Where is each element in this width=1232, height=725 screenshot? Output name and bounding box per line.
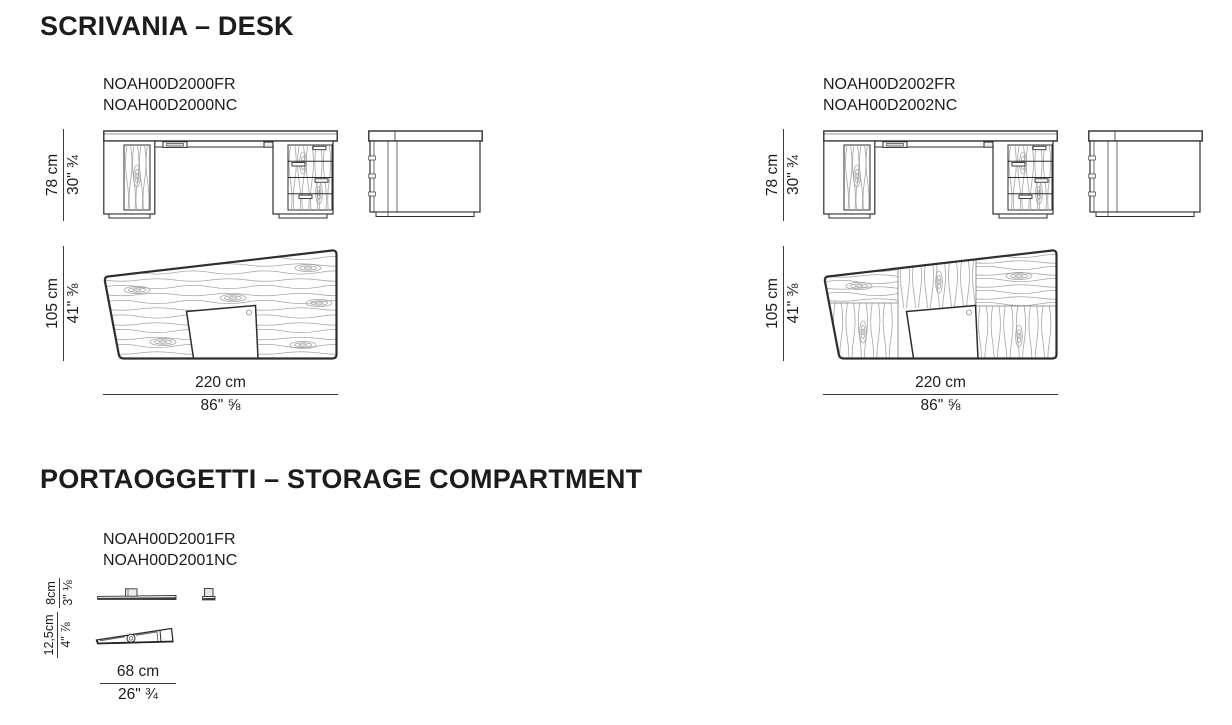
dimension-inch-label: 86" ⅝ [103,395,338,415]
desk-side-view-drawing [368,129,483,221]
dimension-cm-label: 105 cm [764,246,784,361]
desk-front-view-drawing [823,129,1058,221]
product-code-fr: NOAH00D2002FR [823,74,957,95]
desk-top-view-drawing [103,246,338,361]
storage-side-view-drawing [200,584,218,604]
catalog-page: SCRIVANIA – DESK NOAH00D2000FR NOAH00D20… [0,0,1232,725]
dimension-cm-label: 12,5cm [42,612,58,658]
height-dimension: 8cm 3" ⅛ [44,578,78,608]
dimension-inch-label: 30" ¾ [64,155,83,195]
product-code-nc: NOAH00D2002NC [823,95,957,116]
dimension-cm-label: 78 cm [44,129,64,221]
desk-top-view-drawing [823,246,1058,361]
product-codes: NOAH00D2000FR NOAH00D2000NC [103,74,237,116]
dimension-cm-label: 68 cm [100,663,176,684]
dimension-cm-label: 220 cm [823,374,1058,395]
product-code-fr: NOAH00D2001FR [103,529,237,550]
depth-dimension: 105 cm 41" ⅜ [44,246,84,361]
dimension-inch-label: 86" ⅝ [823,395,1058,415]
storage-front-view-drawing [97,584,177,604]
dimension-cm-label: 8cm [44,578,60,608]
dimension-cm-label: 78 cm [764,129,784,221]
height-dimension: 78 cm 30" ¾ [764,129,804,221]
desk-side-view-drawing [1088,129,1203,221]
dimension-inch-label: 41" ⅜ [784,284,803,324]
dimension-inch-label: 26" ¾ [100,684,176,704]
product-codes: NOAH00D2002FR NOAH00D2002NC [823,74,957,116]
product-code-nc: NOAH00D2000NC [103,95,237,116]
dimension-inch-label: 30" ¾ [784,155,803,195]
section-title-storage: PORTAOGGETTI – STORAGE COMPARTMENT [40,464,642,495]
storage-top-view-drawing [95,626,179,648]
width-dimension: 68 cm 26" ¾ [100,663,176,704]
section-title-desk: SCRIVANIA – DESK [40,11,294,42]
dimension-cm-label: 105 cm [44,246,64,361]
width-dimension: 220 cm 86" ⅝ [103,374,338,415]
product-code-fr: NOAH00D2000FR [103,74,237,95]
dimension-inch-label: 4" ⅞ [58,622,73,647]
desk-front-view-drawing [103,129,338,221]
depth-dimension: 12,5cm 4" ⅞ [42,612,76,658]
depth-dimension: 105 cm 41" ⅜ [764,246,804,361]
dimension-inch-label: 41" ⅜ [64,284,83,324]
height-dimension: 78 cm 30" ¾ [44,129,84,221]
product-codes: NOAH00D2001FR NOAH00D2001NC [103,529,237,571]
dimension-inch-label: 3" ⅛ [60,580,75,605]
dimension-cm-label: 220 cm [103,374,338,395]
product-code-nc: NOAH00D2001NC [103,550,237,571]
width-dimension: 220 cm 86" ⅝ [823,374,1058,415]
